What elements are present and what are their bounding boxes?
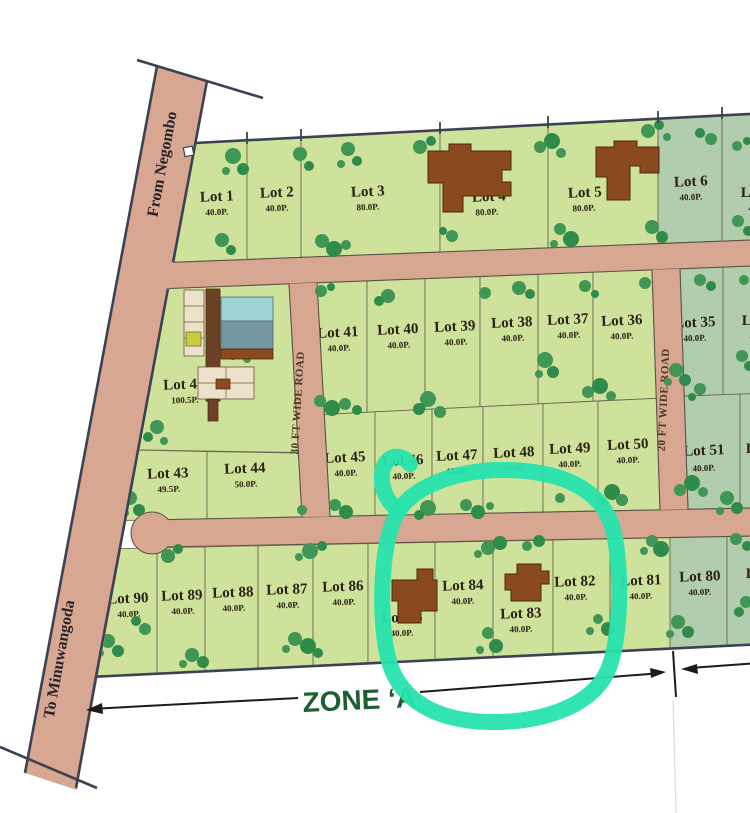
svg-text:100.5P.: 100.5P. (171, 395, 199, 406)
lot-41: Lot 41 40.0P. (317, 281, 367, 415)
svg-text:Lot 47: Lot 47 (436, 447, 478, 465)
lot-86: Lot 86 40.0P. (313, 544, 368, 667)
svg-text:40.0P.: 40.0P. (327, 343, 350, 354)
svg-text:80.0P.: 80.0P. (475, 207, 498, 218)
svg-text:80.0P.: 80.0P. (572, 203, 595, 214)
lot-edge-bottom: Lot (727, 536, 750, 646)
svg-text:49.5P.: 49.5P. (157, 484, 180, 495)
svg-text:40.0P.: 40.0P. (387, 340, 410, 351)
zone-arrow-right (650, 668, 666, 678)
svg-text:Lot 5: Lot 5 (568, 184, 602, 201)
clubhouse-room (186, 332, 201, 346)
svg-text:40.0P.: 40.0P. (276, 600, 299, 611)
svg-text:40.0P.: 40.0P. (610, 331, 633, 342)
svg-text:80.0P.: 80.0P. (356, 202, 379, 213)
svg-text:Lot 36: Lot 36 (601, 312, 643, 330)
svg-text:40.0P.: 40.0P. (679, 192, 702, 203)
pool-lower (221, 321, 273, 349)
svg-text:40.0P.: 40.0P. (444, 337, 467, 348)
svg-text:Lot 87: Lot 87 (266, 581, 308, 598)
svg-text:Lot: Lot (741, 185, 750, 201)
svg-text:Lot 49: Lot 49 (549, 440, 591, 458)
pool-upper (221, 297, 273, 321)
svg-text:Lot: Lot (746, 566, 750, 582)
svg-text:Lot: Lot (742, 313, 750, 329)
svg-text:40.0P.: 40.0P. (451, 596, 474, 607)
svg-text:Lot 88: Lot 88 (212, 584, 254, 601)
svg-text:Lot 1: Lot 1 (200, 188, 234, 205)
svg-text:Lot 86: Lot 86 (322, 578, 364, 595)
svg-text:Lot 40: Lot 40 (377, 321, 419, 339)
lot-88: Lot 88 40.0P. (205, 546, 258, 672)
svg-text:40.0P.: 40.0P. (683, 333, 706, 344)
lot-edge-mid1: Lot 40 (723, 266, 750, 395)
svg-text:Lot 48: Lot 48 (493, 444, 535, 462)
svg-text:Lot 45: Lot 45 (324, 449, 366, 467)
svg-text:40.0P.: 40.0P. (171, 606, 194, 617)
clubhouse-walk (208, 399, 218, 421)
plot-map: Lot 1 40.0P. Lot 2 40.0P. Lot 3 80.0P. L… (0, 0, 750, 813)
svg-text:40.0P.: 40.0P. (509, 624, 532, 635)
svg-text:40.0P.: 40.0P. (616, 455, 639, 466)
svg-text:Lot 39: Lot 39 (434, 318, 476, 336)
svg-text:Lot: Lot (746, 441, 750, 457)
lot-51: Lot 51 40.0P. (683, 394, 740, 509)
zone-dimension: ZONE ‘A (86, 651, 750, 813)
svg-text:50.0P.: 50.0P. (234, 479, 257, 490)
lot-47: Lot 47 40.0P. (432, 407, 483, 515)
svg-text:40.0P.: 40.0P. (205, 207, 228, 218)
lot-edge-mid2: Lot (740, 393, 750, 508)
lot-80: Lot 80 40.0P. (670, 537, 727, 649)
svg-text:Lot 84: Lot 84 (442, 577, 484, 594)
svg-text:Lot 41: Lot 41 (317, 324, 359, 342)
svg-text:40.0P.: 40.0P. (332, 597, 355, 608)
svg-text:40.0P.: 40.0P. (557, 330, 580, 341)
svg-text:Lot 43: Lot 43 (147, 465, 189, 482)
svg-text:Lot 50: Lot 50 (607, 436, 649, 454)
lot-39: Lot 39 40.0P. (425, 276, 480, 409)
svg-text:Lot 83: Lot 83 (500, 605, 542, 622)
entrance-marker (183, 146, 194, 157)
lot-82: Lot 82 40.0P. (553, 539, 610, 655)
svg-text:Lot 44: Lot 44 (224, 460, 266, 477)
svg-text:40.0P.: 40.0P. (390, 628, 413, 639)
svg-text:40.0P.: 40.0P. (392, 471, 415, 482)
lot-84: Lot 84 40.0P. (435, 541, 493, 660)
svg-text:40.0P.: 40.0P. (629, 591, 652, 602)
svg-text:40.0P.: 40.0P. (334, 468, 357, 479)
svg-text:Lot 82: Lot 82 (554, 573, 596, 590)
svg-text:Lot 6: Lot 6 (674, 173, 709, 190)
lot-44: Lot 44 50.0P. (207, 452, 302, 519)
svg-text:Lot 3: Lot 3 (351, 183, 385, 200)
svg-text:Lot 89: Lot 89 (161, 587, 203, 604)
svg-text:40.0P.: 40.0P. (222, 603, 245, 614)
clubhouse-annex (216, 379, 230, 389)
svg-text:Lot 80: Lot 80 (679, 568, 721, 585)
svg-text:40.0P.: 40.0P. (558, 459, 581, 470)
lot-2: Lot 2 40.0P. (247, 138, 301, 260)
svg-text:40.0P.: 40.0P. (501, 333, 524, 344)
svg-text:Lot 90: Lot 90 (107, 590, 149, 607)
zone-b-arrow (681, 664, 698, 674)
svg-text:Lot 2: Lot 2 (260, 184, 294, 201)
svg-text:Lot 37: Lot 37 (547, 311, 589, 329)
svg-text:40.0P.: 40.0P. (564, 592, 587, 603)
svg-text:40.0P.: 40.0P. (688, 587, 711, 598)
svg-text:Lot 38: Lot 38 (491, 314, 533, 332)
subdivision-plan-svg: Lot 1 40.0P. Lot 2 40.0P. Lot 3 80.0P. L… (0, 0, 750, 813)
svg-text:Lot 51: Lot 51 (683, 442, 725, 460)
svg-text:40.0P.: 40.0P. (692, 463, 715, 474)
lot-48: Lot 48 40.0P. (483, 404, 543, 514)
svg-text:40.0P.: 40.0P. (265, 203, 288, 214)
pool-deck (221, 349, 273, 359)
